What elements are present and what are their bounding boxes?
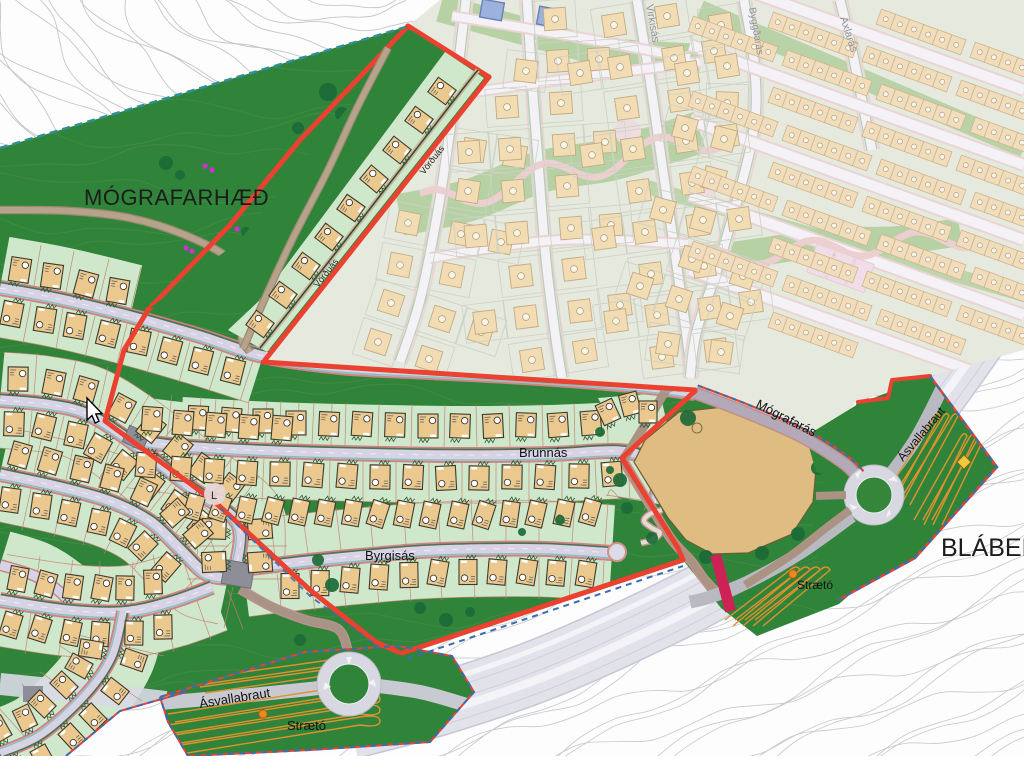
svg-text:Byrgisás: Byrgisás [365,548,415,563]
svg-text:Strætó: Strætó [797,578,833,592]
svg-text:MÓGRAFARHÆÐ: MÓGRAFARHÆÐ [84,185,269,210]
svg-text:BLÁBER: BLÁBER [941,533,1024,562]
svg-text:L: L [211,490,217,502]
svg-text:Brunnás: Brunnás [519,445,568,460]
svg-text:Strætó: Strætó [287,718,326,733]
